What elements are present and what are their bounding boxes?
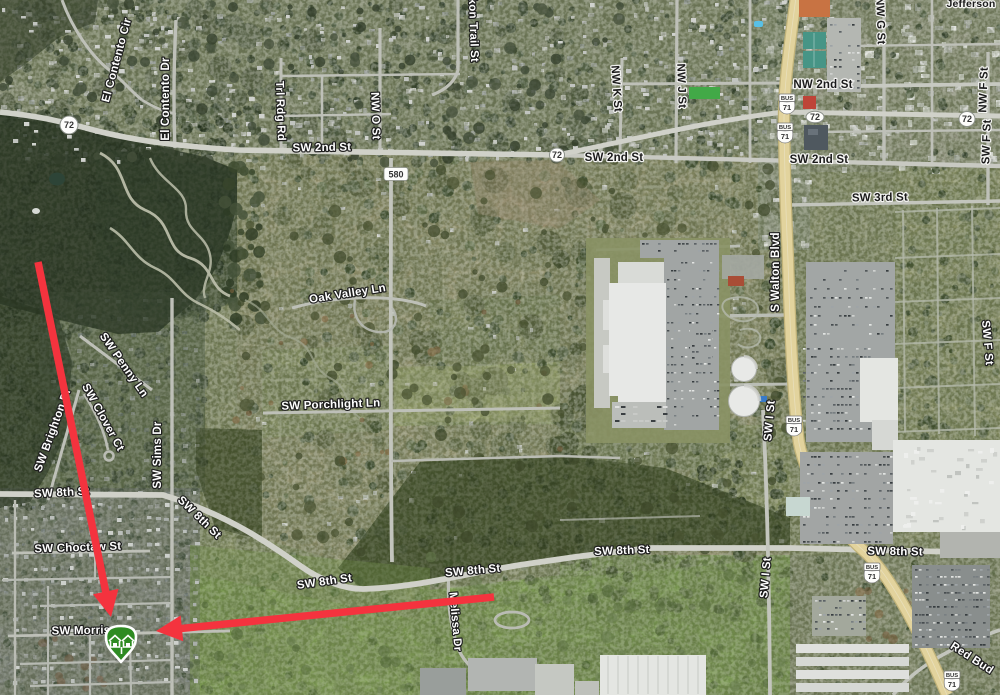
svg-text:72: 72: [810, 112, 820, 122]
svg-text:72: 72: [962, 114, 972, 124]
svg-text:BUS: BUS: [781, 96, 793, 102]
svg-text:NW 2nd St: NW 2nd St: [793, 79, 852, 91]
svg-text:71: 71: [781, 132, 789, 141]
svg-text:BUS: BUS: [866, 565, 878, 571]
svg-text:SW 8th St: SW 8th St: [594, 544, 650, 558]
svg-text:S Walton Blvd: S Walton Blvd: [770, 232, 782, 311]
svg-text:SW 2nd St: SW 2nd St: [790, 154, 849, 166]
svg-text:72: 72: [64, 120, 74, 130]
svg-text:71: 71: [948, 680, 956, 689]
svg-text:SW Morris: SW Morris: [52, 624, 111, 637]
svg-text:BUS: BUS: [788, 418, 800, 424]
svg-text:SW Sims Dr: SW Sims Dr: [152, 421, 164, 489]
svg-text:kon Trail St: kon Trail St: [466, 0, 480, 62]
svg-text:NW G St: NW G St: [873, 0, 887, 45]
svg-text:Trl Rdg Rd: Trl Rdg Rd: [273, 81, 287, 142]
svg-text:NW O St: NW O St: [368, 92, 382, 140]
svg-text:SW 3rd St: SW 3rd St: [852, 192, 908, 205]
svg-text:Jefferson: Jefferson: [946, 0, 995, 10]
svg-text:580: 580: [388, 169, 403, 179]
svg-text:SW 2nd St: SW 2nd St: [293, 141, 352, 154]
svg-text:BUS: BUS: [779, 125, 791, 131]
svg-text:72: 72: [552, 150, 562, 160]
svg-text:71: 71: [783, 103, 791, 112]
svg-text:71: 71: [790, 425, 798, 434]
svg-text:NW J St: NW J St: [674, 63, 688, 108]
svg-text:SW 8th St: SW 8th St: [867, 546, 923, 559]
svg-text:El Contento Dr: El Contento Dr: [160, 57, 172, 141]
svg-text:NW F St: NW F St: [977, 67, 991, 113]
svg-text:71: 71: [868, 572, 876, 581]
svg-text:SW 2nd St: SW 2nd St: [585, 152, 644, 164]
svg-text:BUS: BUS: [946, 673, 958, 679]
svg-text:SW F St: SW F St: [980, 119, 994, 164]
